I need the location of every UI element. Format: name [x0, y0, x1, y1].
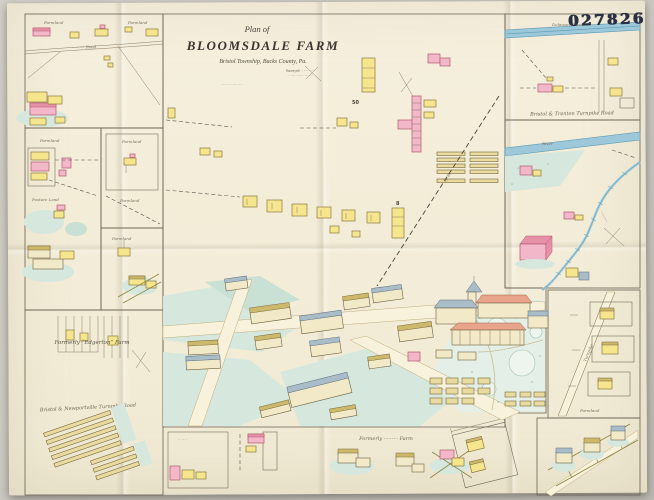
accession-number-stamp: 027826: [568, 9, 646, 30]
building: [108, 63, 113, 67]
wing: [436, 308, 476, 324]
building: [33, 259, 63, 269]
building: [62, 158, 71, 168]
building: [330, 226, 339, 233]
inset-left-top: Farmland Farmland ·········· Road: [16, 20, 163, 127]
outbuilding: [436, 350, 452, 358]
greenhouse-rows: [43, 403, 137, 467]
building: [95, 29, 108, 36]
bottom-row-content: ·· ···· Formerly ········· Farm: [170, 434, 489, 480]
building: [337, 118, 347, 126]
farm-building: [372, 284, 404, 303]
outbuilding: [458, 352, 476, 360]
label-pasture: Pasture Land: [31, 197, 59, 202]
building: [362, 58, 375, 92]
inset-bottom-right: [545, 424, 638, 496]
building: [547, 77, 553, 81]
building: [440, 58, 450, 66]
building: [70, 32, 79, 38]
building: [57, 205, 65, 210]
building: [125, 27, 132, 32]
building: [352, 231, 360, 237]
inset-left-mid-right-top: Farmland Farmland: [106, 134, 160, 224]
tower-spire: [466, 281, 482, 292]
farm-building: [188, 340, 219, 355]
farm-building: [397, 321, 433, 342]
central-panel-content: Plan of BLOOMSDALE FARM Bristol Township…: [163, 24, 548, 426]
inset-left-bottom: Formerly “Edgerton” Farm Bristol & Newpo…: [39, 316, 153, 482]
panel-right-strip: [548, 290, 640, 418]
title-location: Bristol Township, Bucks County, Pa.: [219, 59, 307, 65]
building: [566, 268, 578, 277]
building: [59, 170, 66, 176]
building: [48, 96, 62, 104]
building: [170, 466, 180, 480]
building: [564, 212, 574, 219]
inset-left-mid: Farmland Pasture Land: [22, 138, 99, 282]
inset-right-strip: Turnpike Farmland: [558, 292, 634, 416]
survey-line: [166, 120, 232, 127]
garden-bed: [509, 350, 535, 376]
building: [553, 86, 563, 92]
building: [200, 148, 210, 155]
side-house: [528, 311, 548, 328]
title-farm-name: BLOOMSDALE FARM: [186, 38, 339, 53]
building: [182, 470, 194, 479]
inset-left-mid-right-bottom: Farmland: [111, 236, 161, 303]
title-fineprint-3: ····· ······ · ···: [222, 83, 243, 87]
label-formerly-edgerton-farm: Formerly “Edgerton” Farm: [53, 339, 129, 346]
label-farmland: Farmland: [119, 198, 140, 203]
plan-numbered-buildings: [243, 196, 380, 223]
building: [130, 154, 135, 158]
building: [533, 170, 541, 176]
building: [214, 151, 222, 157]
farm-building: [186, 355, 221, 370]
label-river: River: [541, 141, 554, 146]
label-road: ·········· Road: [72, 44, 97, 50]
farm-building: [309, 337, 341, 357]
building: [66, 330, 74, 340]
railroad-line: [377, 96, 499, 286]
building: [146, 29, 158, 36]
roof: [476, 295, 532, 303]
building: [575, 215, 583, 220]
farm-building: [343, 293, 371, 310]
building: [350, 122, 358, 128]
pink-mansion: [515, 236, 555, 269]
building: [398, 120, 414, 129]
shore-field: [505, 150, 585, 192]
plot-house: [607, 426, 629, 447]
label-farmland: Farmland: [43, 20, 64, 25]
building: [608, 58, 618, 65]
building: [392, 208, 404, 238]
building: [118, 248, 130, 256]
building: [424, 100, 436, 107]
building-cluster: [430, 450, 472, 478]
strip-building: [602, 342, 618, 354]
farm-building: [299, 310, 343, 334]
strip-building: [600, 308, 614, 319]
roof: [450, 323, 526, 330]
building-roof: [129, 276, 145, 279]
building: [31, 152, 49, 160]
building: [146, 281, 156, 288]
building: [100, 25, 105, 29]
building: [31, 162, 49, 171]
plot-house: [580, 438, 604, 460]
label-farmland: Farmland: [579, 408, 600, 413]
title-fineprint-1: Surveyed ·· ···· ····: [286, 69, 314, 73]
farm-building-pink: [408, 352, 420, 361]
label-farmland: Farmland: [39, 138, 60, 143]
building-roof: [33, 28, 50, 31]
greenhouse-rows-2: [90, 440, 153, 482]
building-cluster: [330, 449, 374, 475]
survey-line: [166, 190, 240, 197]
label-farmland: Farmland: [121, 139, 142, 144]
building: [104, 56, 110, 60]
label-number-8: 8: [396, 201, 400, 207]
building: [196, 472, 206, 479]
title-block: Plan of BLOOMSDALE FARM Bristol Township…: [186, 24, 339, 87]
label-formerly-farm: Formerly ········· Farm: [358, 436, 413, 442]
building: [27, 92, 47, 102]
label-turnpike: Bristol & Trenton Turnpike Road: [529, 110, 614, 117]
map-sheet-graphic: Farmland Farmland ·········· Road Farmla…: [0, 0, 654, 500]
building: [124, 158, 136, 165]
label-number-50: 50: [352, 100, 359, 106]
plot-house: [552, 448, 576, 472]
building: [168, 108, 175, 118]
building: [428, 54, 440, 63]
panel-dimension-box: [451, 415, 518, 487]
panel-bottom-box-2: [263, 432, 277, 470]
building-roof: [248, 434, 264, 437]
pond: [65, 222, 87, 236]
label-box-script: ·· ····: [178, 437, 187, 442]
field: [163, 352, 300, 426]
scanned-map-photo: Farmland Farmland ·········· Road Farmla…: [0, 0, 654, 500]
survey-cross: [132, 350, 150, 372]
roof: [434, 300, 478, 308]
building: [55, 117, 65, 123]
wing: [478, 303, 530, 318]
building: [54, 211, 64, 218]
building-cluster: [396, 453, 424, 472]
label-farmland: Farmland: [127, 20, 148, 25]
plot-box: [620, 98, 634, 108]
building-roof: [28, 246, 50, 250]
birdseye-view: [163, 276, 548, 426]
building: [246, 446, 256, 452]
building: [579, 272, 589, 280]
title-plan-of: Plan of: [244, 24, 271, 34]
plan-buildings: 50: [168, 54, 498, 238]
building: [424, 112, 434, 118]
building: [60, 251, 74, 259]
building: [31, 173, 47, 180]
building: [538, 84, 552, 92]
survey-cross: [604, 228, 624, 246]
panel-left-bottom: [25, 310, 163, 495]
label-stream: ··········: [599, 210, 609, 224]
building: [520, 166, 532, 175]
terrace-row: [452, 330, 524, 345]
building: [30, 118, 46, 125]
inset-right-mid: River ··········: [505, 132, 640, 290]
inset-right-top: Delaware River Bristol & Trenton Turnpik…: [505, 22, 640, 118]
label-farmland: Farmland: [111, 236, 132, 241]
strip-building: [598, 378, 612, 389]
road: [599, 40, 604, 112]
building: [610, 88, 622, 96]
